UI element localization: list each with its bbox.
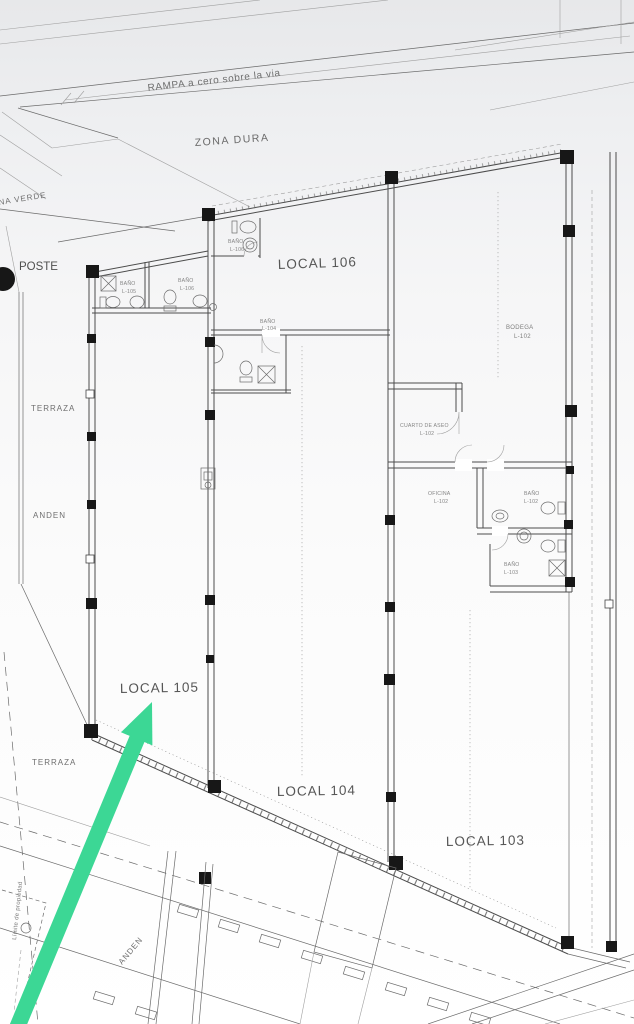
toilet-icon	[232, 221, 256, 233]
floorplan-image: RAMPA a cero sobre la via ZONA DURA ZONA…	[0, 0, 634, 1024]
plan-labels: RAMPA a cero sobre la via ZONA DURA ZONA…	[0, 68, 540, 966]
bano-104-code: L-104	[262, 326, 276, 332]
oficina-code: L-102	[434, 499, 448, 505]
bodega-name: BODEGA	[506, 325, 533, 331]
structural-columns	[84, 150, 617, 952]
terraza-upper-label: TERRAZA	[31, 404, 75, 413]
bano-105-code: L-105	[122, 289, 136, 295]
anden-upper-label: ANDEN	[33, 511, 66, 520]
bano-104-name: BAÑO	[260, 318, 276, 325]
property-limit-line	[4, 652, 38, 1024]
sink-icon	[492, 510, 508, 522]
toilet-icon	[541, 502, 565, 514]
bano-103-name: BAÑO	[504, 561, 520, 568]
zona-verde-label: ZONA VERDE	[0, 190, 47, 209]
cuarto-aseo-name: CUARTO DE ASEO	[400, 423, 449, 429]
sink-icon	[243, 238, 257, 252]
bano-106a-code: L-106	[180, 286, 194, 292]
lane-markings	[93, 904, 490, 1024]
terraza-lower-label: TERRAZA	[32, 758, 76, 767]
bathroom-fixtures	[0, 221, 565, 576]
bano-103-code: L-103	[504, 570, 518, 576]
sink-icon	[517, 529, 531, 543]
bano-105-name: BAÑO	[120, 280, 136, 287]
local-103-label: LOCAL 103	[446, 833, 525, 849]
bodega-code: L-102	[514, 334, 531, 340]
toilet-icon	[240, 361, 252, 382]
bano-102-code: L-102	[524, 499, 538, 505]
shower-icon	[101, 276, 116, 291]
bano-106a-name: BAÑO	[178, 277, 194, 284]
local-105-label: LOCAL 105	[120, 680, 199, 696]
toilet-icon	[541, 540, 565, 552]
oficina-name: OFICINA	[428, 491, 451, 497]
local-104-label: LOCAL 104	[277, 783, 356, 799]
toilet-icon	[100, 297, 120, 309]
bano-106b-name: BAÑO	[228, 238, 244, 245]
shower-icon	[258, 366, 275, 383]
building-walls	[89, 144, 630, 968]
drain-icon	[210, 304, 217, 311]
bano-102-name: BAÑO	[524, 490, 540, 497]
poste-symbol	[0, 267, 15, 291]
rampa-label: RAMPA a cero sobre la via	[147, 68, 281, 94]
rampa-road-lines	[0, 0, 634, 207]
sink-icon	[130, 296, 144, 308]
zona-dura-label: ZONA DURA	[194, 132, 269, 149]
local-106-label: LOCAL 106	[278, 254, 358, 272]
anden-lower-label: ANDEN	[117, 935, 145, 966]
sink-icon	[193, 295, 207, 307]
hatched-ramp	[300, 852, 396, 1024]
floorplan-svg: RAMPA a cero sobre la via ZONA DURA ZONA…	[0, 0, 634, 1024]
poste-label: POSTE	[19, 261, 58, 273]
cuarto-aseo-code: L-102	[420, 431, 434, 437]
sink-icon	[214, 345, 223, 363]
bano-106b-code: L-106	[230, 247, 244, 253]
shower-icon	[549, 560, 565, 576]
